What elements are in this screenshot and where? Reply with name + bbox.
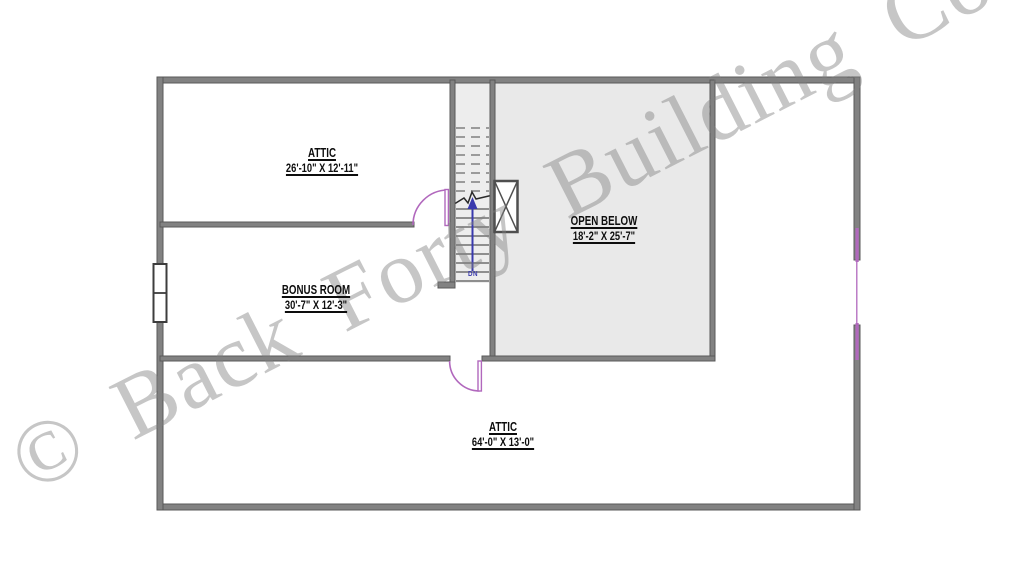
bottom-door-swing-icon (450, 361, 482, 391)
room-name: ATTIC (472, 420, 534, 435)
bonus-room-bottom-wall (160, 356, 450, 361)
right-wall-opening (856, 228, 859, 360)
chimney-icon (495, 181, 518, 232)
room-name: OPEN BELOW (571, 214, 638, 229)
attic-door-swing-icon (413, 190, 448, 226)
room-dimensions: 18'-2" X 25'-7" (571, 229, 638, 244)
room-label-attic-bottom: ATTIC 64'-0" X 13'-0" (463, 420, 543, 450)
stairwell-wall-cap (438, 282, 455, 288)
floor-plan-drawing (0, 0, 1024, 579)
attic-bottom-wall (160, 222, 414, 227)
floor-plan: © Back Forty Building Co ATTIC 26'-10" X… (0, 0, 1024, 579)
room-label-bonus-room: BONUS ROOM 30'-7" X 12'-3" (272, 283, 360, 313)
window-icon (154, 264, 167, 322)
room-name: BONUS ROOM (282, 283, 350, 298)
room-dimensions: 64'-0" X 13'-0" (472, 435, 534, 450)
room-dimensions: 30'-7" X 12'-3" (282, 298, 350, 313)
room-name: ATTIC (286, 146, 358, 161)
open-below-right-wall (710, 80, 715, 356)
outer-wall-bottom (157, 504, 860, 510)
outer-wall-top (157, 77, 860, 83)
room-dimensions: 26'-10" X 12'-11" (286, 161, 358, 176)
stairwell-left-wall (450, 80, 455, 288)
room-label-open-below: OPEN BELOW 18'-2" X 25'-7" (561, 214, 646, 244)
stair-direction-label: DN (463, 271, 483, 278)
room-label-attic-left: ATTIC 26'-10" X 12'-11" (276, 146, 368, 176)
open-below-bottom-wall (482, 356, 715, 361)
